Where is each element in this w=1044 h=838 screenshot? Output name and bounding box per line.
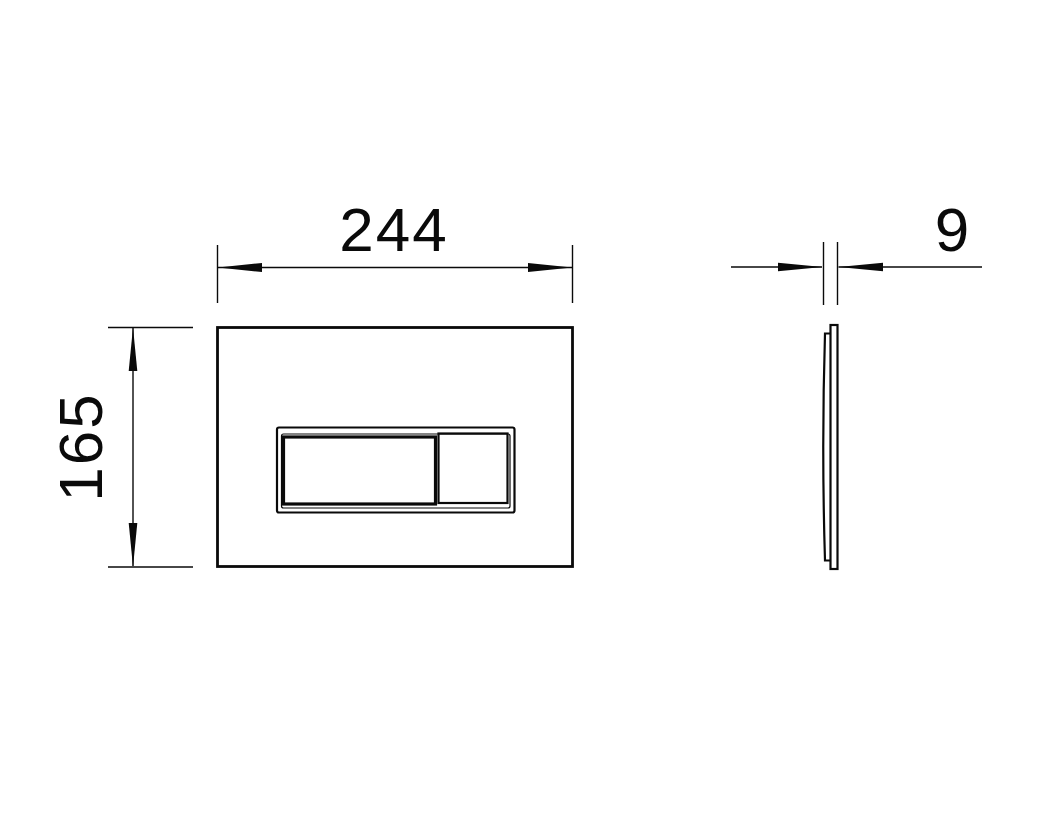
button-recess-lip: [282, 434, 511, 508]
dimension-thickness: 9: [731, 195, 982, 305]
technical-drawing: 244 165 9: [0, 0, 1044, 838]
button-recess-outline: [277, 428, 515, 513]
width-dimension-label: 244: [339, 195, 448, 264]
arrowhead-left-icon: [839, 263, 884, 272]
dimension-width: 244: [218, 195, 573, 303]
arrowhead-right-icon: [778, 263, 823, 272]
dimension-height: 165: [46, 328, 193, 568]
arrowhead-right-icon: [528, 263, 572, 272]
arrowhead-down-icon: [129, 523, 138, 567]
side-view: [823, 325, 837, 569]
thickness-dimension-label: 9: [935, 195, 971, 264]
height-dimension-label: 165: [46, 392, 115, 501]
side-back-frame: [831, 325, 838, 569]
drawing-svg: 244 165 9: [0, 0, 1044, 838]
front-view: [218, 328, 573, 567]
large-flush-button: [284, 437, 436, 504]
arrowhead-left-icon: [218, 263, 262, 272]
small-flush-button: [439, 434, 508, 504]
arrowhead-up-icon: [129, 328, 138, 372]
plate-outline: [218, 328, 573, 567]
